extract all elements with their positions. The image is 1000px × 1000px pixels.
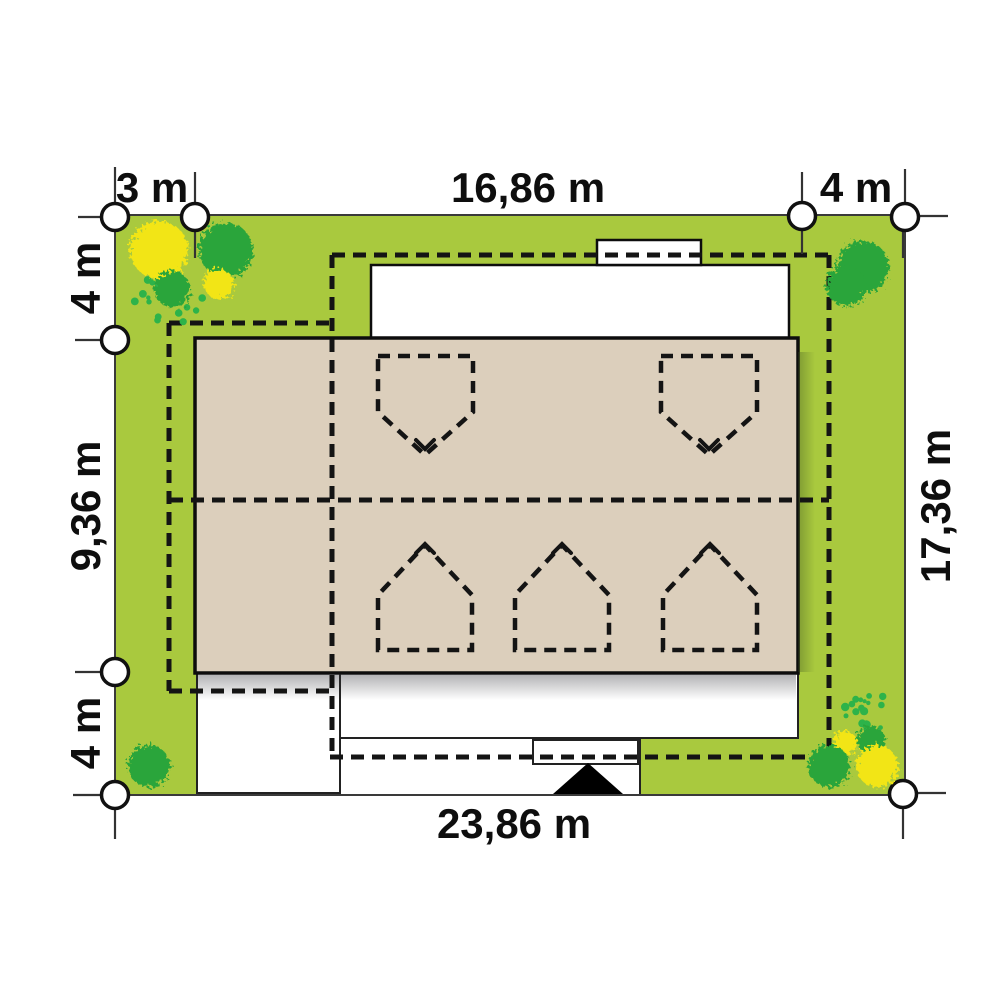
- shrub-dot-icon: [146, 295, 150, 299]
- tree-icon: [130, 221, 188, 279]
- site-plan-canvas: 3 m 16,86 m 4 m 4 m 9,36 m 4 m 17,36 m 2…: [0, 0, 1000, 1000]
- shrub-dot-icon: [849, 701, 856, 708]
- shrub-dot-icon: [866, 701, 870, 705]
- survey-point-icon: [102, 327, 129, 354]
- shrub-dot-icon: [180, 318, 187, 325]
- shrub-dot-icon: [175, 309, 183, 317]
- shrub-dot-icon: [841, 703, 849, 711]
- dim-top-right: 4 m: [820, 164, 892, 211]
- tree-icon: [204, 269, 234, 299]
- survey-point-icon: [890, 781, 917, 808]
- shrub-dot-icon: [858, 697, 863, 702]
- shrub-dot-icon: [863, 699, 867, 703]
- site-plan-drawing: 3 m 16,86 m 4 m 4 m 9,36 m 4 m 17,36 m 2…: [0, 0, 1000, 1000]
- dim-bottom: 23,86 m: [437, 800, 591, 847]
- dim-left-middle: 9,36 m: [62, 441, 109, 572]
- dim-left-upper: 4 m: [62, 242, 109, 314]
- shrub-dot-icon: [146, 299, 151, 304]
- survey-point-icon: [102, 659, 129, 686]
- survey-point-icon: [102, 782, 129, 809]
- dim-top-left: 3 m: [116, 164, 188, 211]
- tree-icon: [856, 745, 898, 787]
- shrub-dot-icon: [858, 705, 865, 712]
- dim-left-lower: 4 m: [62, 697, 109, 769]
- tree-icon: [808, 745, 850, 787]
- tree-icon: [154, 271, 190, 307]
- tree-icon: [826, 266, 866, 306]
- shrub-dot-icon: [139, 290, 147, 298]
- roof-shadow-bottom: [198, 674, 796, 700]
- tree-icon: [199, 223, 253, 277]
- shrub-dot-icon: [878, 702, 885, 709]
- dim-top-center: 16,86 m: [451, 164, 605, 211]
- shrub-dot-icon: [844, 713, 849, 718]
- shrub-dot-icon: [198, 294, 206, 302]
- shrub-dot-icon: [858, 719, 866, 727]
- shrub-dot-icon: [879, 693, 886, 700]
- house-footprint: [371, 265, 789, 338]
- survey-point-icon: [892, 204, 919, 231]
- dim-right: 17,36 m: [912, 429, 959, 583]
- shrub-dot-icon: [193, 307, 199, 313]
- survey-point-icon: [789, 203, 816, 230]
- shrub-dot-icon: [866, 693, 872, 699]
- tree-icon: [128, 745, 170, 787]
- roof: [195, 338, 798, 673]
- shrub-dot-icon: [131, 298, 139, 306]
- roof-shadow-right: [798, 352, 815, 672]
- shrub-dot-icon: [155, 313, 162, 320]
- shrub-dot-icon: [184, 304, 191, 311]
- entrance-step: [533, 740, 638, 764]
